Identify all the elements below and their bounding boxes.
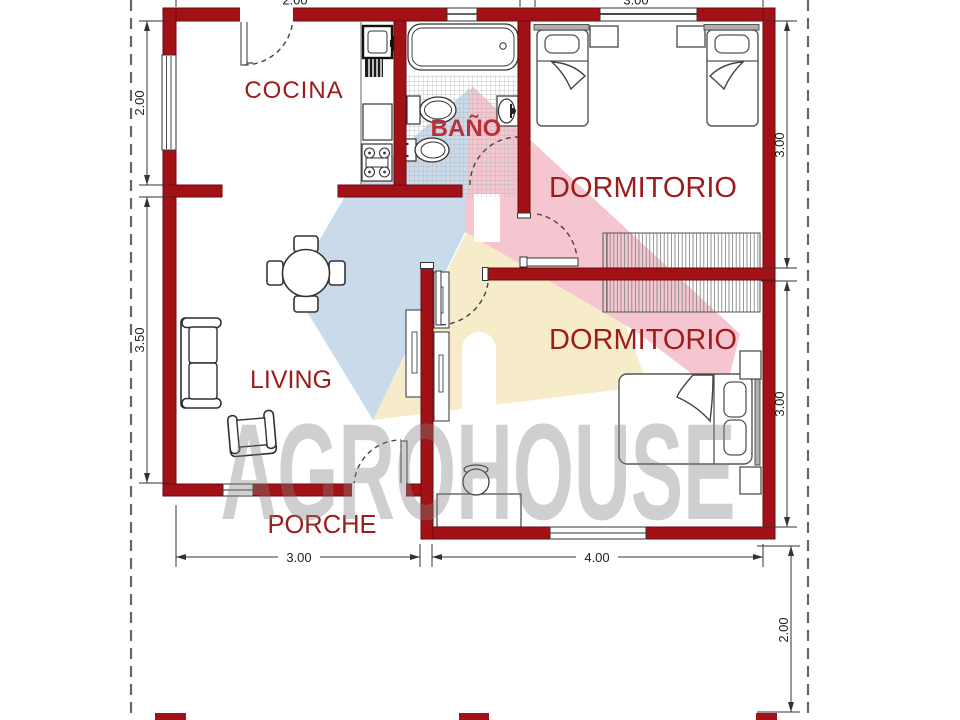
- svg-text:3.50: 3.50: [132, 327, 147, 352]
- svg-text:COCINA: COCINA: [244, 77, 343, 104]
- svg-text:3.00: 3.00: [623, 0, 648, 8]
- svg-text:4.00: 4.00: [584, 550, 609, 565]
- svg-text:BAÑO: BAÑO: [431, 114, 502, 142]
- svg-text:2.00: 2.00: [776, 617, 791, 642]
- svg-text:AGROHOUSE: AGROHOUSE: [221, 396, 736, 549]
- svg-text:3.00: 3.00: [772, 391, 787, 416]
- svg-text:DORMITORIO: DORMITORIO: [549, 324, 737, 356]
- svg-text:3.00: 3.00: [772, 132, 787, 157]
- svg-text:3.00: 3.00: [286, 550, 311, 565]
- svg-text:2.00: 2.00: [132, 90, 147, 115]
- svg-text:LIVING: LIVING: [250, 366, 332, 394]
- svg-text:2.00: 2.00: [282, 0, 307, 8]
- svg-text:DORMITORIO: DORMITORIO: [549, 172, 737, 204]
